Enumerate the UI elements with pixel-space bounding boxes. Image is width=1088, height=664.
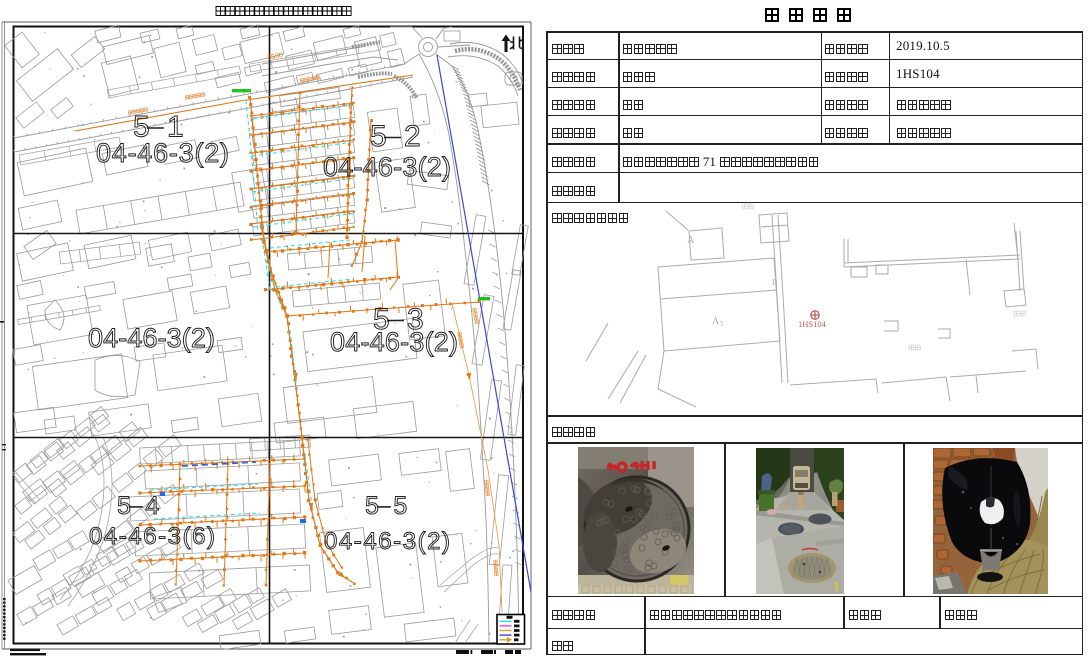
svg-text:5: 5	[365, 492, 379, 520]
svg-text:04-46-3(2): 04-46-3(2)	[323, 152, 451, 182]
svg-text:04-46-3(6): 04-46-3(6)	[89, 523, 215, 550]
svg-text:2: 2	[404, 120, 421, 153]
svg-text:5: 5	[117, 492, 131, 520]
svg-text:1HS104: 1HS104	[798, 319, 827, 329]
svg-text:04-46-3(2): 04-46-3(2)	[88, 323, 215, 353]
svg-text:A: A	[687, 235, 695, 246]
svg-text:5: 5	[370, 120, 387, 153]
svg-text:5: 5	[720, 320, 724, 328]
svg-text:A: A	[712, 316, 720, 327]
svg-text:04-46-3(2): 04-46-3(2)	[330, 327, 458, 357]
svg-text:B: B	[772, 278, 777, 287]
svg-text:04-46-3(2): 04-46-3(2)	[96, 138, 229, 168]
svg-text:5: 5	[393, 492, 407, 520]
svg-text:4: 4	[145, 492, 159, 520]
svg-text:04-46-3(2): 04-46-3(2)	[324, 528, 450, 555]
